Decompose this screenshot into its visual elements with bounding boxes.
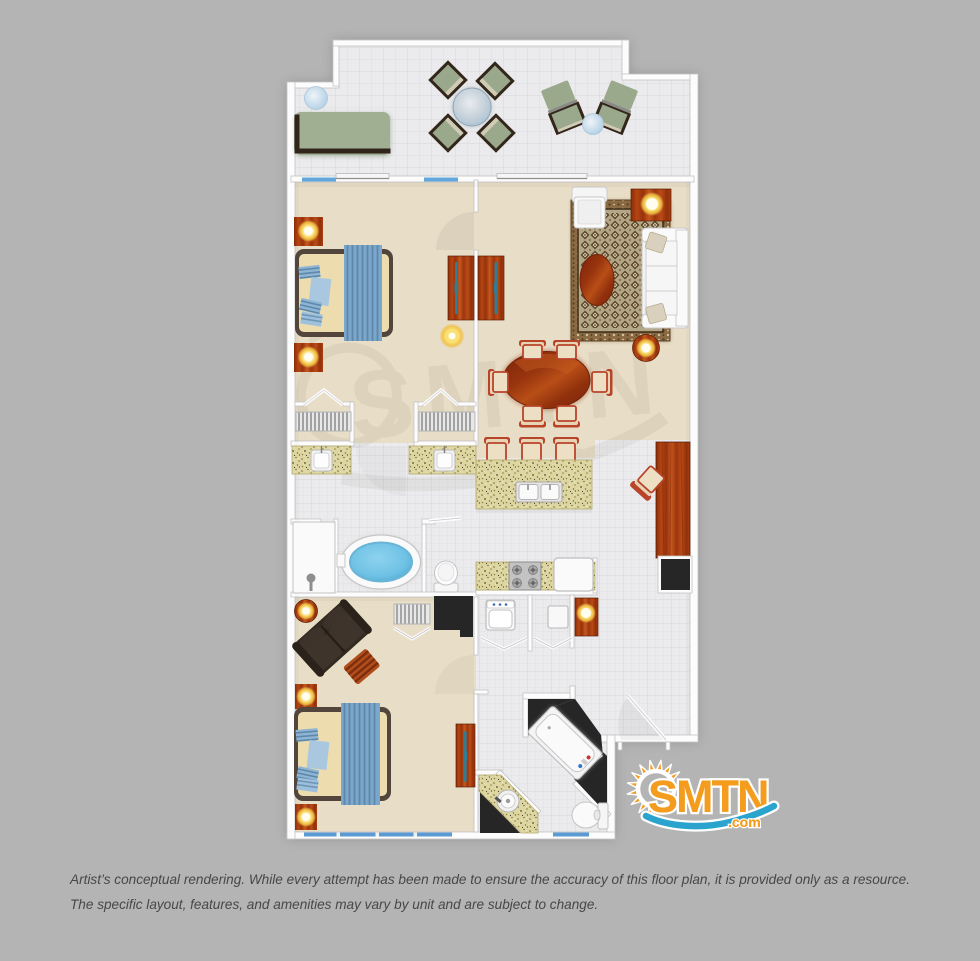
svg-text:Artist’s conceptual rendering.: Artist’s conceptual rendering. While eve… (69, 872, 910, 887)
svg-text:The specific layout, features,: The specific layout, features, and ameni… (70, 897, 598, 912)
svg-text:.com: .com (728, 814, 761, 830)
